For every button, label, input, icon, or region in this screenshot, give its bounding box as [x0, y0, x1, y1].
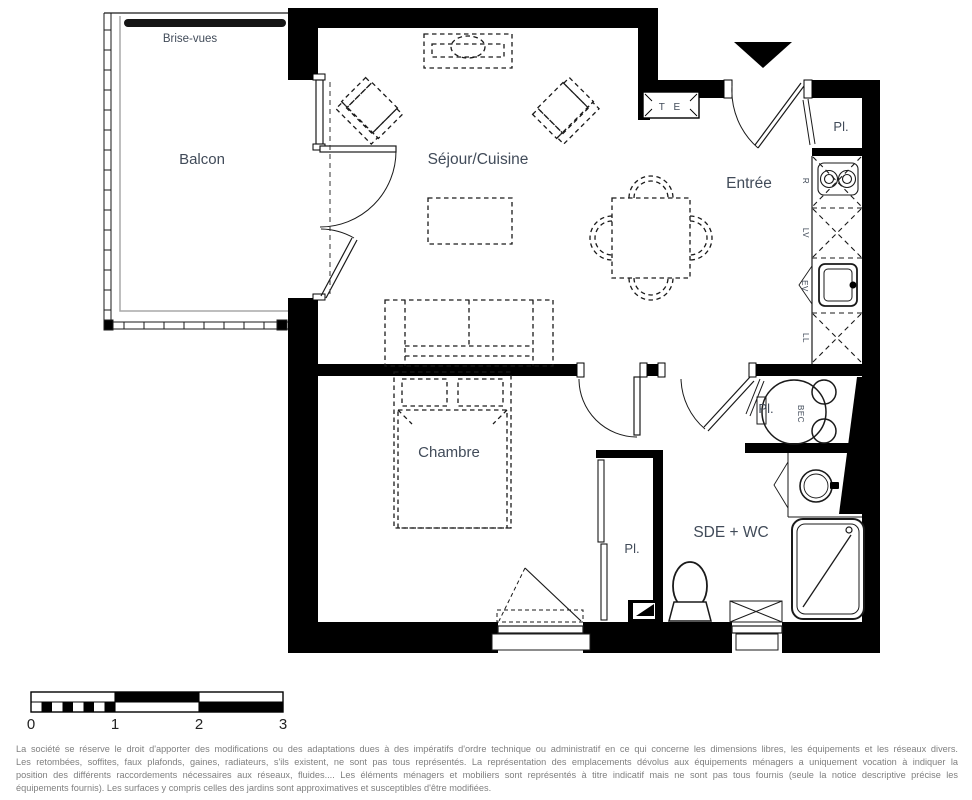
disclaimer-line: Les retombées, soffites, faux plafonds, …	[16, 756, 958, 769]
privacy-screen-label: Brise-vues	[163, 33, 218, 45]
closet-label: Pl.	[833, 119, 848, 134]
scale-bar-checkers	[42, 702, 116, 712]
bedroom-window	[498, 626, 583, 633]
bathroom-door-arc	[681, 379, 705, 429]
balcony-bottom-railing	[104, 320, 288, 330]
tap-icon	[850, 282, 857, 289]
balcony: Brise-vues Balcon	[104, 13, 290, 330]
disclaimer-line: position des différents raccordements né…	[16, 769, 958, 782]
scale-tick-3: 3	[279, 716, 287, 733]
disclaimer-line: équipements fournis). Les surfaces y com…	[16, 782, 958, 795]
disclaimer-line: La société se réserve le droit d'apporte…	[16, 743, 958, 756]
water-heater-label: BEC	[796, 405, 805, 423]
door-swing-arc-2	[321, 229, 354, 238]
unit-cross-marks	[812, 157, 862, 362]
scale-tick-0: 0	[27, 716, 35, 733]
floor-plan-page: Brise-vues Balcon T E Entrée Pl.	[0, 0, 972, 800]
scale-tick-2: 2	[195, 716, 203, 733]
armchair	[532, 77, 600, 145]
kitchen-units: R LV EV LL	[799, 156, 862, 364]
closet-sliding-door	[598, 460, 604, 542]
sideboard	[424, 34, 512, 68]
bathroom: SDE + WC BEC Pl.	[628, 379, 864, 622]
balcony-left-railing	[104, 13, 111, 330]
entrance-closet: Pl.	[803, 99, 849, 145]
entrance-door-arc	[732, 86, 758, 148]
living-label: Séjour/Cuisine	[428, 151, 529, 168]
fixed-pane	[316, 80, 323, 144]
shower	[792, 519, 864, 619]
bathroom-window	[732, 626, 782, 633]
bedroom-label: Chambre	[418, 444, 480, 461]
cooktop	[818, 163, 858, 195]
balcony-label: Balcon	[179, 151, 225, 168]
entrance-door-leaf	[755, 83, 804, 148]
scale-bar: 0 1 2 3	[27, 692, 287, 733]
basin-tap-icon	[830, 482, 839, 489]
bathroom-window-symbol	[730, 601, 782, 622]
bedroom-door-leaf	[634, 377, 640, 435]
dining-table	[612, 198, 690, 278]
door-leaf-2	[321, 238, 357, 298]
door-leaf	[320, 146, 396, 152]
closet-door-leaf	[803, 99, 815, 145]
bathroom-window-sill	[736, 634, 778, 650]
duct-symbol	[628, 600, 660, 622]
bedroom-window-symbol	[497, 568, 583, 622]
bedroom-closet-label: Pl.	[624, 541, 639, 556]
balcony-door	[316, 80, 396, 298]
sink-label: EV	[800, 280, 809, 292]
disclaimer: La société se réserve le droit d'apporte…	[16, 743, 958, 795]
scale-tick-1: 1	[111, 716, 119, 733]
bedroom: Chambre Pl.	[394, 372, 640, 622]
bathroom-closet-label: Pl.	[758, 401, 773, 416]
bathroom-door-leaf	[704, 377, 754, 431]
fridge-label: R	[801, 178, 810, 184]
sofa	[385, 300, 553, 366]
toilet	[669, 562, 711, 621]
dining-set	[590, 176, 712, 300]
entrance-arrow-icon	[734, 42, 792, 68]
bedroom-window-sill	[492, 634, 590, 650]
privacy-screen-bar	[124, 19, 286, 27]
door-swing-arc	[320, 151, 396, 227]
washer-label: LL	[801, 333, 810, 343]
dishwasher-label: LV	[801, 228, 810, 238]
electrical-box-label: T E	[659, 102, 683, 113]
armchair	[335, 77, 403, 145]
coffee-table	[428, 198, 512, 244]
floor-plan: Brise-vues Balcon T E Entrée Pl.	[0, 0, 972, 800]
closet-sliding-door	[601, 544, 607, 620]
entrance-label: Entrée	[726, 175, 772, 192]
bedroom-door-arc	[579, 379, 637, 437]
electrical-box: T E	[643, 92, 699, 118]
bathroom-label: SDE + WC	[693, 524, 768, 541]
